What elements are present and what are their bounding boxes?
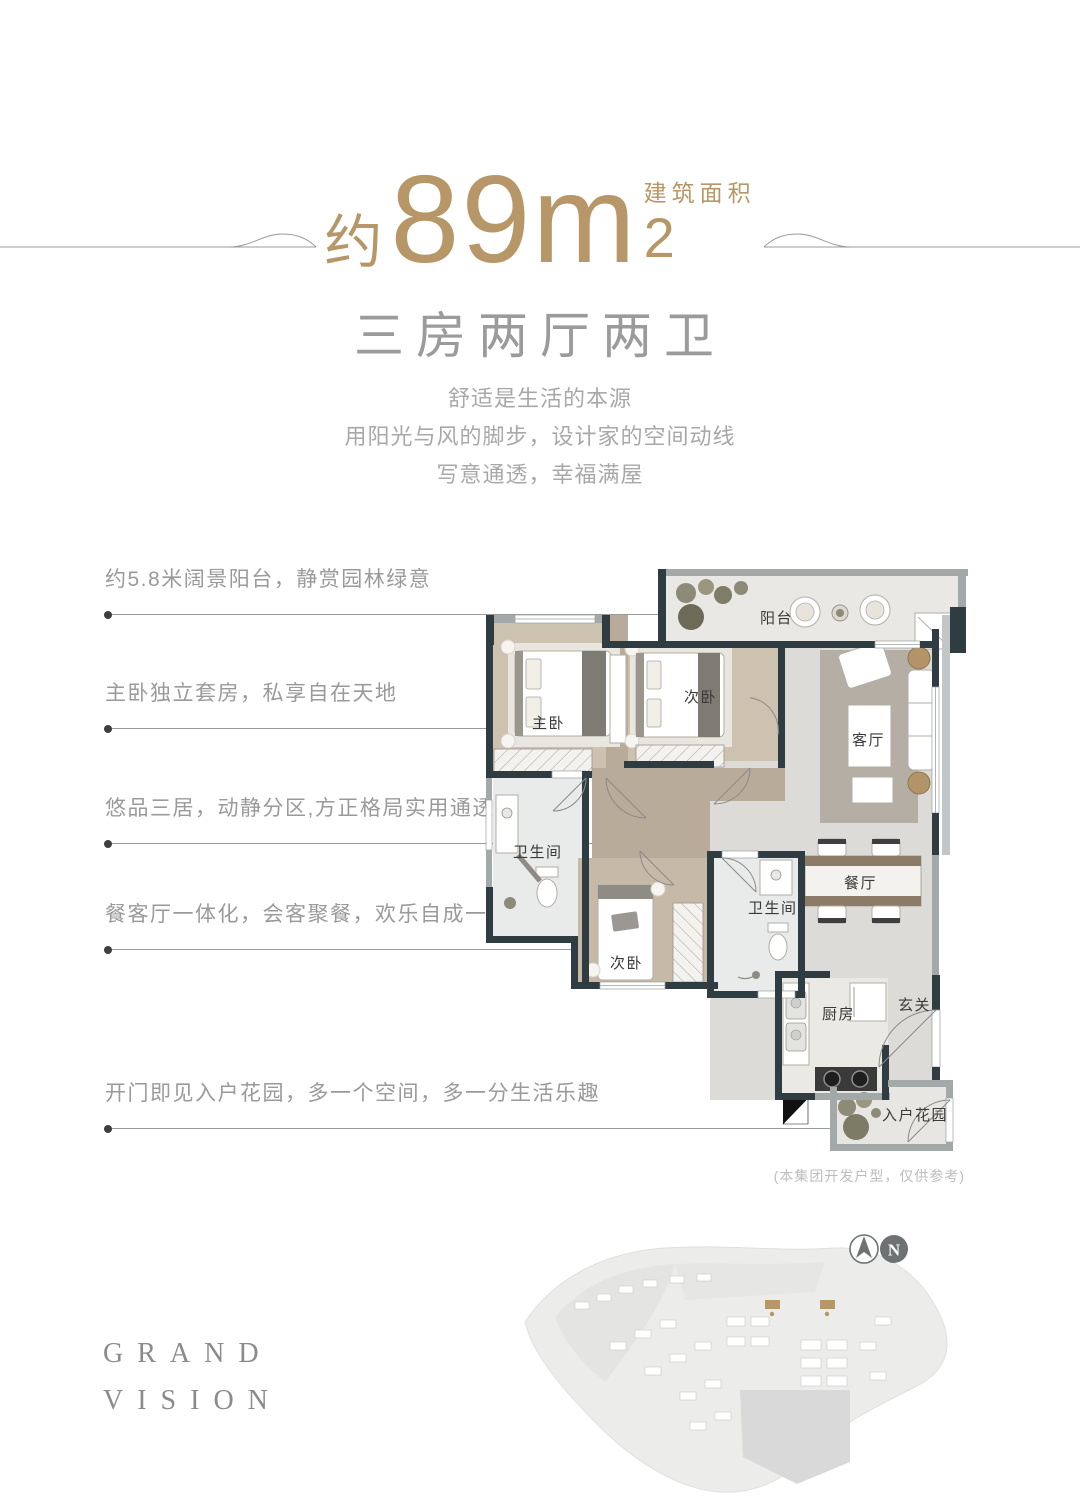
area-unit-block: 建筑面积 2 xyxy=(644,174,756,266)
area-label: 建筑面积 xyxy=(644,174,756,208)
room-label-bedroom3: 次卧 xyxy=(610,955,643,972)
room-label-bedroom2: 次卧 xyxy=(684,689,717,706)
feature-bullet-master: 主卧独立套房，私享自在天地 xyxy=(105,677,511,729)
bullet-dot xyxy=(104,1125,112,1133)
toilet-icon xyxy=(769,934,787,960)
bullet-dot xyxy=(104,725,112,733)
desk-icon xyxy=(610,655,626,743)
bullet-leader-line xyxy=(105,728,511,729)
description-line-1: 舒适是生活的本源 xyxy=(0,380,1080,418)
brand-line-1: GRAND xyxy=(103,1330,282,1377)
site-map: N xyxy=(515,1222,965,1507)
side-table-icon xyxy=(908,647,930,669)
room-label-dining: 餐厅 xyxy=(844,875,877,892)
plant-icon xyxy=(838,1098,856,1116)
plant-icon xyxy=(504,897,516,909)
room-label-kitchen: 厨房 xyxy=(822,1006,855,1023)
poster-page: 约 89m 建筑面积 2 三房两厅两卫 舒适是生活的本源 用阳光与风的脚步，设计… xyxy=(0,0,1080,1507)
layout-subtitle: 三房两厅两卫 xyxy=(0,296,1080,368)
room-label-bath1: 卫生间 xyxy=(513,844,563,861)
plant-icon xyxy=(843,1114,869,1140)
area-title: 约 89m 建筑面积 2 xyxy=(0,158,1080,282)
plant-icon xyxy=(871,1108,881,1118)
room-label-bath2: 卫生间 xyxy=(748,900,798,917)
compass-north-label: N xyxy=(888,1241,901,1260)
lamp-icon xyxy=(501,640,515,654)
bullet-dot xyxy=(104,946,112,954)
area-superscript: 2 xyxy=(644,210,675,266)
site-map-land xyxy=(525,1247,947,1492)
room-label-living: 客厅 xyxy=(852,732,885,749)
room-label-garden: 入户花园 xyxy=(882,1107,948,1124)
area-number: 89m xyxy=(390,158,637,282)
bullet-dot xyxy=(104,611,112,619)
brand-logo: GRAND VISION xyxy=(103,1330,282,1424)
toilet-icon xyxy=(537,879,557,907)
description: 舒适是生活的本源 用阳光与风的脚步，设计家的空间动线 写意通透，幸福满屋 xyxy=(0,380,1080,494)
description-line-2: 用阳光与风的脚步，设计家的空间动线 xyxy=(0,418,1080,456)
room-label-balcony: 阳台 xyxy=(760,610,793,627)
sofa-icon xyxy=(908,670,935,770)
lamp-icon xyxy=(651,882,665,896)
description-line-3: 写意通透，幸福满屋 xyxy=(0,456,1080,494)
ottoman-icon xyxy=(852,777,893,803)
bullet-text: 主卧独立套房，私享自在天地 xyxy=(105,677,511,707)
side-table-icon xyxy=(908,772,930,794)
bullet-dot xyxy=(104,840,112,848)
area-approx: 约 xyxy=(324,195,384,279)
floor-plan-disclaimer: (本集团开发户型，仅供参考) xyxy=(460,1166,965,1186)
fridge-icon xyxy=(850,983,886,1021)
lamp-icon xyxy=(501,734,515,748)
floor-plan: 阳台 主卧 次卧 客厅 卫生间 次卧 卫生间 餐厅 厨房 玄关 入户花园 xyxy=(460,555,980,1175)
room-label-entry: 玄关 xyxy=(898,997,931,1014)
wardrobe-icon xyxy=(673,903,703,982)
room-label-master: 主卧 xyxy=(532,715,565,732)
brand-line-2: VISION xyxy=(103,1377,282,1424)
